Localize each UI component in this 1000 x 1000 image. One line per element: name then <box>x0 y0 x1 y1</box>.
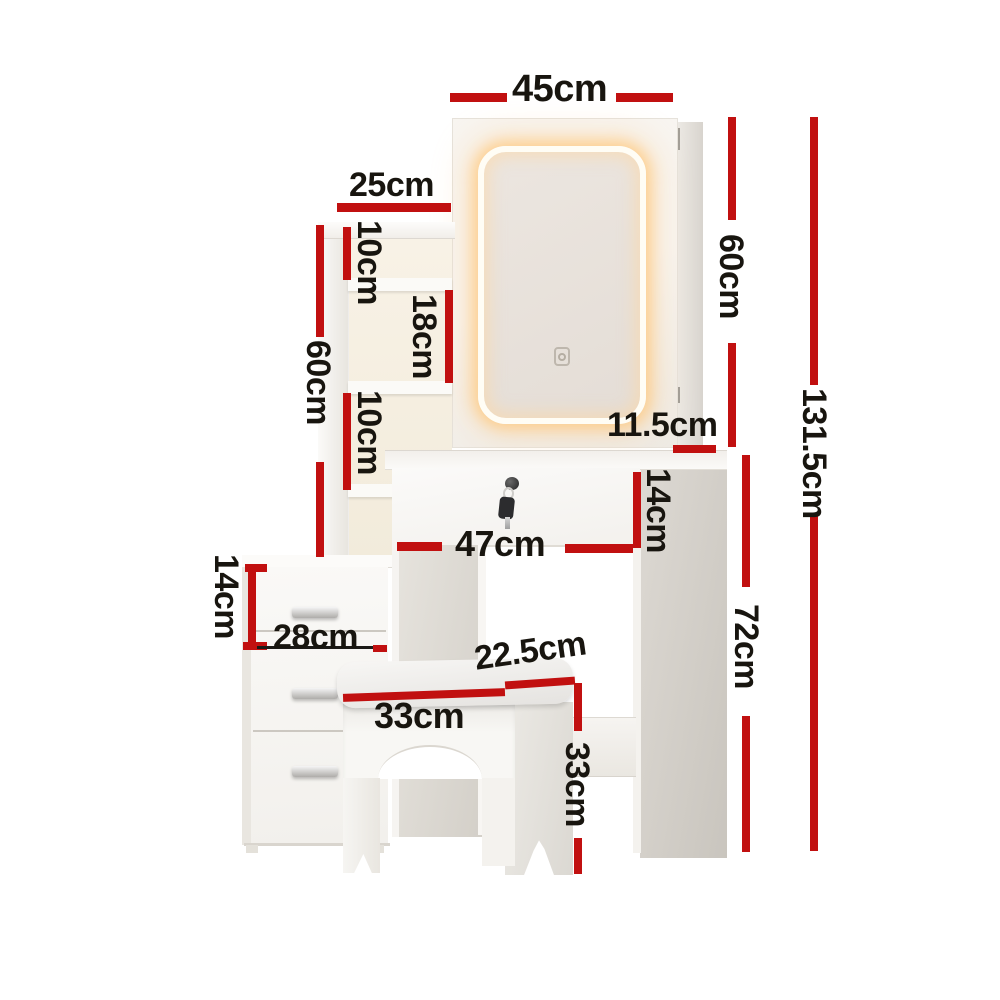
dim-stool-height-line-bottom <box>574 838 582 874</box>
dim-stool-height-line-top <box>574 683 582 731</box>
touch-switch-dot-icon <box>558 353 566 361</box>
dim-shelf-width-line <box>337 203 451 212</box>
dim-shelf-width-label: 25cm <box>349 168 434 202</box>
dim-cubby-top-label: 10cm <box>352 220 386 305</box>
dim-chest-drawer-height-label: 14cm <box>209 554 243 639</box>
dim-hutch-height-line-bottom <box>316 462 324 557</box>
dim-desk-height-line-top <box>742 455 750 587</box>
desktop <box>385 450 727 470</box>
dim-chest-drawer-bracket-line <box>248 566 256 650</box>
chest-drawer-handle <box>292 688 338 699</box>
dim-mirror-width-label: 45cm <box>512 70 607 108</box>
dim-side-ledge-line <box>673 445 716 453</box>
dim-chest-width-line-cap <box>373 645 387 652</box>
led-mirror <box>478 146 646 424</box>
dimension-diagram: 45cm 25cm 10cm 18cm 10cm 60cm 60cm 131.5… <box>0 0 1000 1000</box>
mirror-cabinet-side-panel <box>677 122 703 448</box>
chest-drawer-handle <box>292 607 338 618</box>
dim-hutch-height-label: 60cm <box>301 340 335 425</box>
dim-desk-width-label: 47cm <box>455 526 545 562</box>
hinge-mark-icon <box>678 387 680 403</box>
dim-mirror-height-line-bottom <box>728 343 736 447</box>
dim-mirror-height-line-top <box>728 117 736 220</box>
dim-desk-height-line-bottom <box>742 716 750 852</box>
dim-mirror-height-label: 60cm <box>714 234 748 319</box>
dim-chest-width-label: 28cm <box>273 620 358 654</box>
dim-cubby-lower-label: 10cm <box>352 390 386 475</box>
dim-mirror-width-line-right <box>616 93 673 102</box>
stool-front-right-leg <box>482 778 515 866</box>
stool-left-leg <box>343 778 380 873</box>
dim-mirror-width-line-left <box>450 93 507 102</box>
dim-hutch-height-line-top <box>316 225 324 337</box>
dim-overall-height-line-top <box>810 117 818 385</box>
dim-side-ledge-label: 11.5cm <box>607 408 717 442</box>
dim-desk-height-label: 72cm <box>729 604 763 689</box>
dim-desk-width-line-left <box>397 542 442 551</box>
chest-foot <box>246 845 258 853</box>
dim-cubby-middle-label: 18cm <box>407 294 441 379</box>
dim-stool-height-label: 33cm <box>560 742 594 827</box>
dim-cubby-middle-line <box>445 290 453 383</box>
dim-desk-width-line-right <box>565 544 633 553</box>
dim-overall-height-line-bottom <box>810 515 818 851</box>
dim-desk-drawer-height-label: 14cm <box>641 468 675 553</box>
chest-drawer-handle <box>292 766 338 777</box>
dim-overall-height-label: 131.5cm <box>797 388 831 519</box>
dim-stool-width-label: 33cm <box>374 698 464 734</box>
hinge-mark-icon <box>678 128 680 150</box>
